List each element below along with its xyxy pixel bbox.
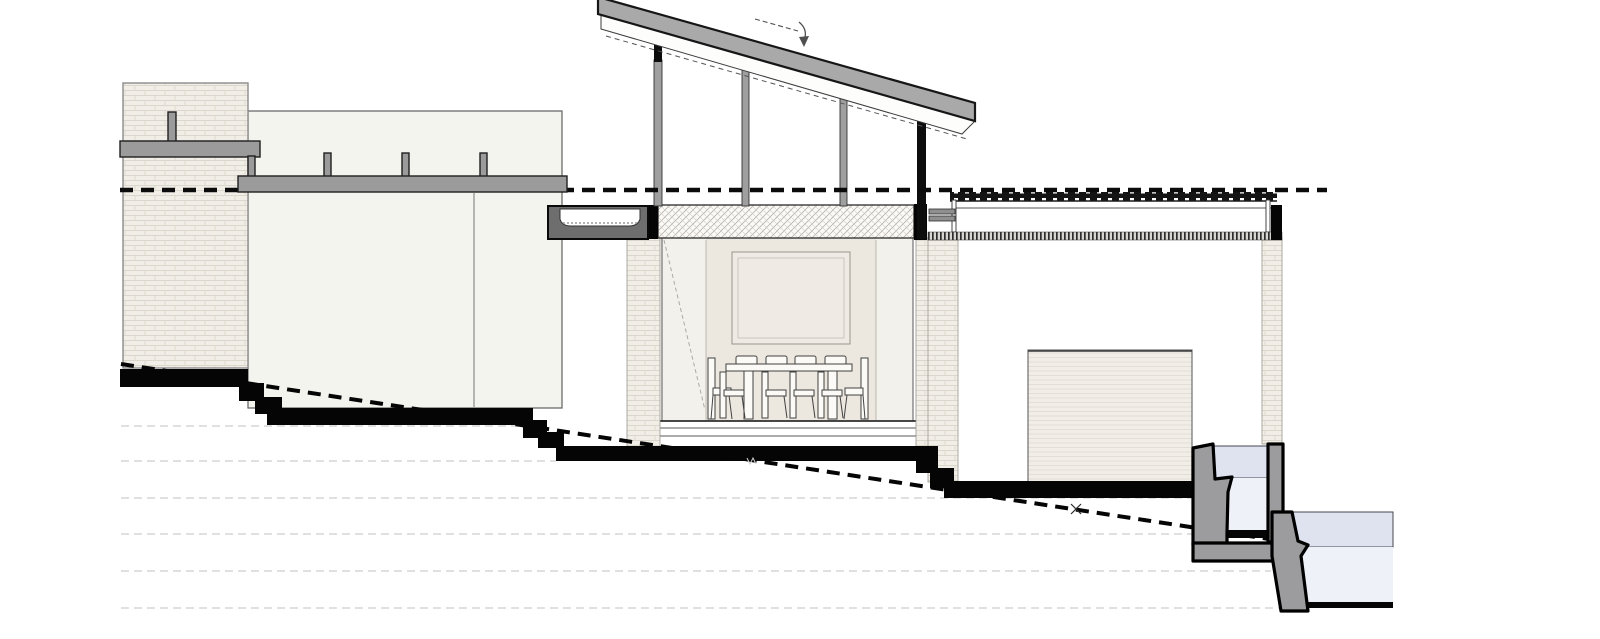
picture-frame [732, 252, 850, 344]
box-gutter [548, 206, 648, 239]
dining-canopy-slab [548, 204, 927, 240]
guardrail-lower-post [480, 153, 487, 177]
right-wing [928, 192, 1282, 483]
floor-buildup-line [648, 428, 924, 436]
section-drawing-canvas [0, 0, 1600, 639]
arrowhead [799, 36, 809, 47]
roof-post-4-black [917, 117, 926, 239]
upper-basin-water-band [1210, 446, 1274, 478]
guardrail-lower-post [402, 153, 409, 177]
dining-pier-left [627, 238, 660, 447]
garage-door [1028, 350, 1192, 483]
roof-connector-flashing [929, 209, 955, 214]
dining-table-leg [744, 371, 753, 419]
lower-pool-floor [1299, 602, 1393, 608]
clerestory-roof [598, 0, 975, 239]
roof-edge-bar-right [1271, 205, 1282, 240]
ground-step [538, 432, 564, 448]
canopy-slab-hatched [658, 205, 914, 238]
dining-table-top [726, 364, 852, 371]
soffit-rib-strip [928, 232, 1282, 240]
roof-post-1-gray [654, 60, 662, 206]
guardrail-upper-beam [120, 141, 260, 157]
ground-band [267, 408, 533, 425]
roof-end-post-right [1266, 200, 1270, 232]
guardrail-lower-post [248, 156, 255, 177]
guardrail-lower-post [324, 153, 331, 177]
lower-pool-water-body [1301, 547, 1393, 604]
water-feature [1193, 444, 1393, 611]
roof-post-2 [742, 63, 749, 206]
guardrail-lower-beam [238, 176, 567, 192]
section-drawing [0, 0, 1600, 639]
right-wing-flat-roof [928, 192, 1282, 240]
right-wing-pier-left [928, 238, 958, 482]
retaining-wall-base [1193, 543, 1277, 561]
right-wing-pier-right [1262, 238, 1282, 444]
guardrail-upper-post [168, 112, 176, 142]
dining-room [646, 238, 951, 436]
upper-terrace-brick-wall [123, 83, 248, 368]
roof-ballast-strip [950, 192, 1277, 201]
roof-connector-flashing [929, 216, 955, 221]
